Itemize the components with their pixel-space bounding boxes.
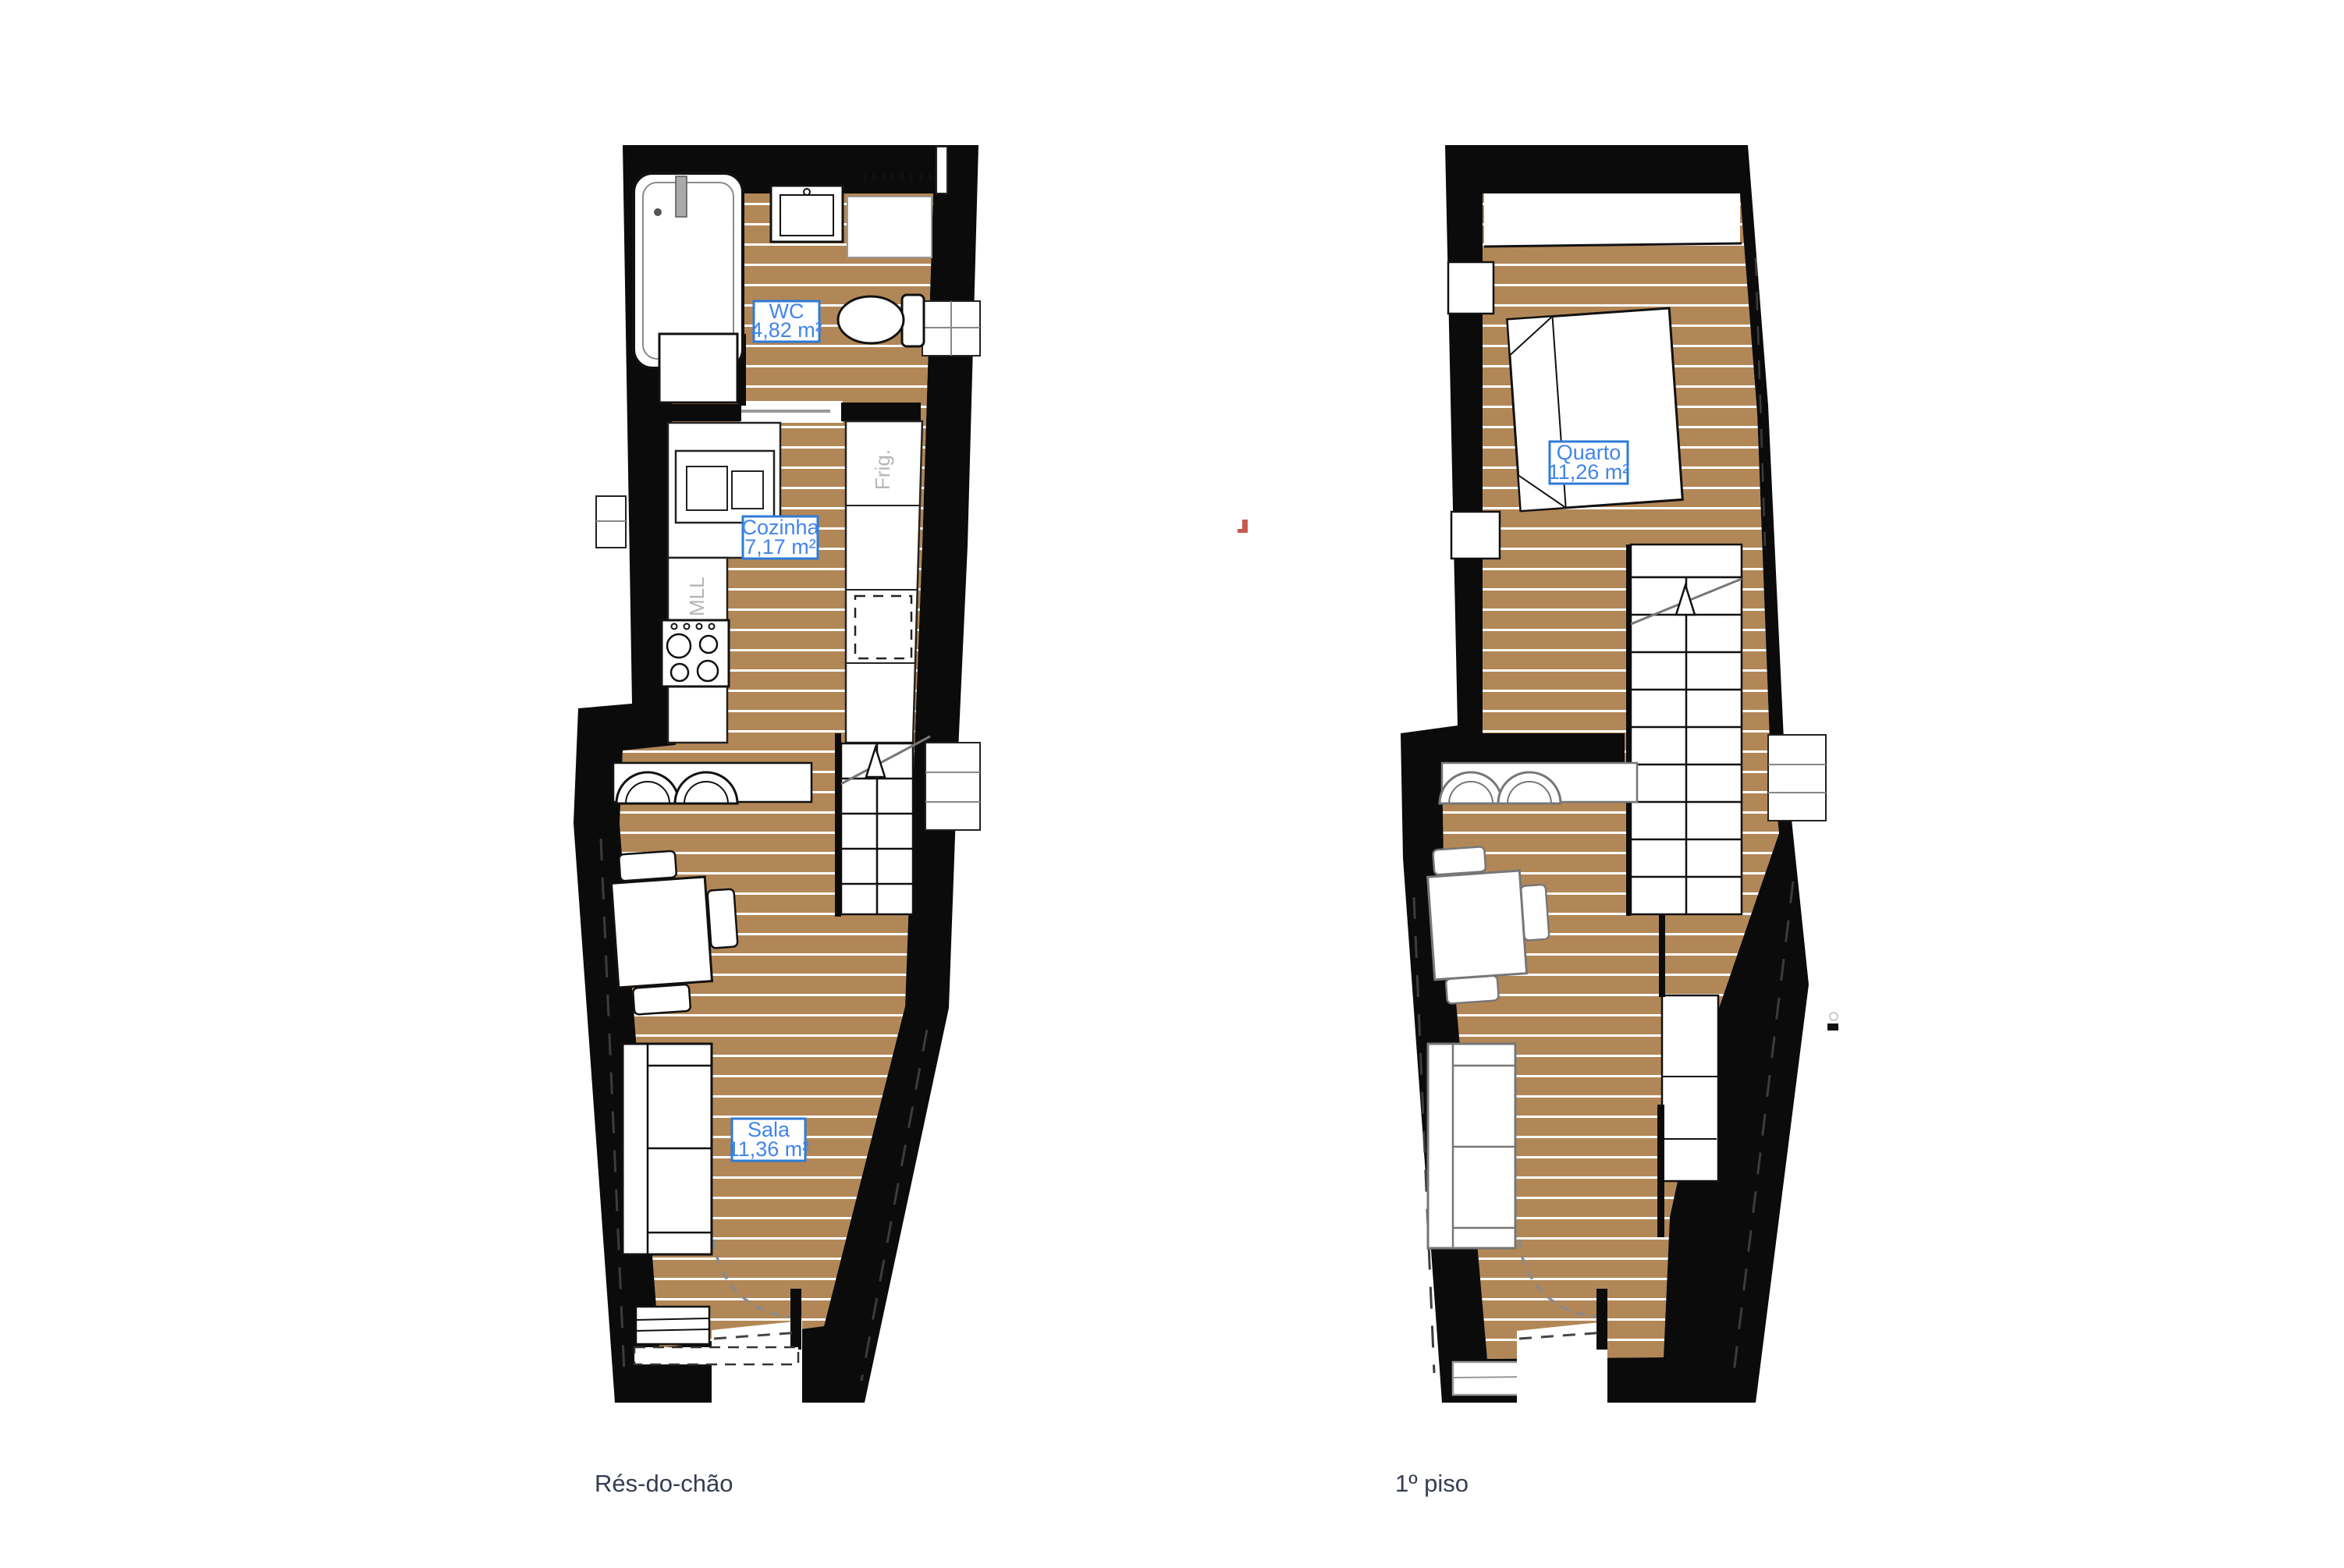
room-label-sala: Sala 11,36 m² [728,1118,810,1161]
window-icon [922,301,980,356]
chair-icon [633,984,691,1015]
bath-cabinet [659,334,737,403]
stair-side-wall [1626,545,1631,916]
wall-segment [841,403,921,421]
sofa-icon [1428,1044,1515,1248]
room-area: 4,82 m² [751,318,822,342]
floor-name-first: 1º piso [1395,1470,1469,1497]
dishwasher-label: MLL [685,576,709,616]
kitchen-counter-right: Frig. [846,421,922,743]
wall-stub [1659,914,1665,997]
table-icon [611,877,712,988]
recessed-mat-dashed [634,1347,798,1364]
breakfast-bar [1440,763,1637,804]
window-icon [936,147,947,193]
floorplan-drawing: MLL Frig. [0,0,2344,1568]
closet-strip [1484,193,1740,245]
chair-icon [707,889,737,948]
table-icon [1428,871,1527,980]
floorplan-sheet: MLL Frig. [0,0,2344,1568]
shower-column-icon [676,176,687,217]
window-icon [596,496,626,548]
stair-landing [1631,545,1742,577]
tub-drain-icon [654,208,662,216]
nightstand-icon [1448,262,1493,314]
plot-accent-mark [1238,520,1248,533]
stairs-icon [1626,545,1742,916]
sink-icon [771,186,843,242]
door-jamb [1596,1289,1607,1350]
wall-segment [1442,733,1625,763]
nightstand-icon [1451,512,1500,559]
sofa-icon [623,1044,712,1254]
plan-ground-floor: MLL Frig. [574,145,980,1404]
floor-name-ground: Rés-do-chão [595,1470,733,1497]
wc-counter [847,197,932,257]
built-in-appliance-dashed [855,596,911,658]
door-jamb [790,1289,801,1350]
room-label-quarto: Quarto 11,26 m² [1548,441,1630,484]
stove-icon [662,620,729,686]
room-area: 7,17 m² [744,535,816,559]
plot-stray-mark [1827,1013,1838,1031]
room-label-cozinha: Cozinha 7,17 m² [741,516,819,559]
window-icon [1768,735,1826,821]
window-icon [925,743,980,830]
wall-stub [1657,1105,1664,1237]
wall-segment [669,404,741,421]
toilet-icon [838,295,924,346]
chair-icon [619,851,677,882]
fridge-label: Frig. [871,449,894,490]
stair-side-wall [835,733,841,917]
kitchen-sink-icon [676,451,774,523]
room-label-wc: WC 4,82 m² [751,300,822,342]
chair-icon [1433,846,1486,875]
room-area: 11,26 m² [1548,460,1630,484]
breakfast-bar [613,763,812,804]
room-area: 11,36 m² [728,1137,810,1161]
plan-first-floor: Quarto 11,26 m² [1401,145,1826,1404]
chair-icon [1446,975,1499,1004]
